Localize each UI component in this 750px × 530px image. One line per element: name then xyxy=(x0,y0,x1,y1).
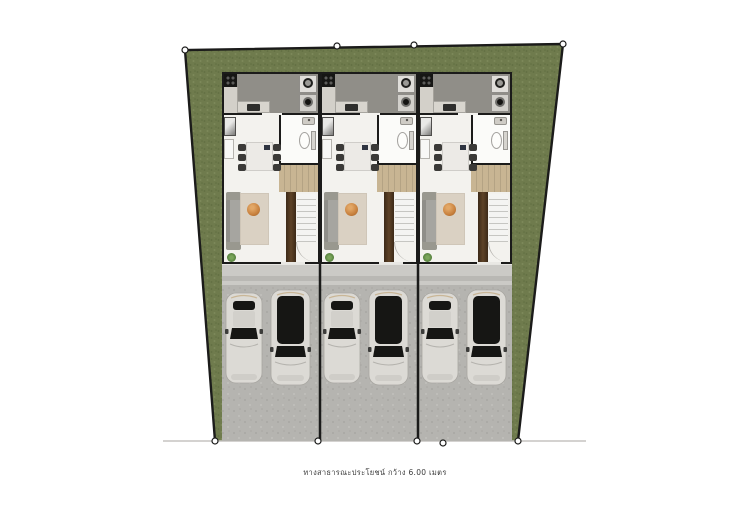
toilet-icon xyxy=(491,129,508,153)
washing-machine-icon xyxy=(397,75,415,93)
dryer-icon xyxy=(299,94,317,112)
toilet-tank xyxy=(409,131,414,150)
kitchen-counter xyxy=(420,87,434,113)
dryer-drum-icon xyxy=(495,97,505,107)
survey-marker xyxy=(334,43,340,49)
kitchen-sink-icon xyxy=(443,104,456,111)
staircase-treads xyxy=(297,194,316,242)
living-area xyxy=(322,115,416,262)
table-decor xyxy=(362,145,368,150)
stair-landing xyxy=(279,165,318,192)
rug xyxy=(436,193,465,245)
kitchen-sink-icon xyxy=(345,104,358,111)
rug xyxy=(338,193,367,245)
fridge-icon xyxy=(224,117,236,136)
stair-landing xyxy=(377,165,416,192)
kitchen-sink-counter xyxy=(237,101,270,113)
plant-icon xyxy=(423,253,432,262)
toilet-bowl xyxy=(397,132,408,149)
stove-icon xyxy=(224,74,237,87)
cabinet xyxy=(322,139,332,159)
dining-chair xyxy=(336,154,344,161)
plant-icon xyxy=(227,253,236,262)
dining-chair xyxy=(238,164,246,171)
site-plan: ทางสาธารณะประโยชน์ กว้าง 6.00 เมตร xyxy=(0,0,750,530)
kitchen-sink-icon xyxy=(247,104,260,111)
kitchen-counter xyxy=(322,87,336,113)
dining-chair xyxy=(434,164,442,171)
bathroom-sink-icon xyxy=(400,117,413,125)
dining-chair xyxy=(371,164,379,171)
dining-chair xyxy=(469,164,477,171)
survey-marker xyxy=(560,41,566,47)
front-door-opening xyxy=(477,262,501,264)
staircase-treads xyxy=(395,194,414,242)
dryer-icon xyxy=(397,94,415,112)
kitchen-sink-counter xyxy=(335,101,368,113)
survey-marker xyxy=(411,42,417,48)
car-suv xyxy=(270,288,311,387)
bathroom xyxy=(377,115,416,165)
dining-table xyxy=(246,142,273,171)
washing-machine-icon xyxy=(491,75,509,93)
kitchen-sink-counter xyxy=(433,101,466,113)
living-area xyxy=(420,115,510,262)
dining-chair xyxy=(273,154,281,161)
car-suv xyxy=(466,288,507,387)
door-swing-arc xyxy=(488,242,508,262)
fridge-icon xyxy=(420,117,432,136)
dining-chair xyxy=(273,144,281,151)
sofa xyxy=(324,192,339,250)
kitchen-area xyxy=(420,74,510,115)
dining-chair xyxy=(469,154,477,161)
bathroom xyxy=(279,115,318,165)
rug xyxy=(240,193,269,245)
cabinet xyxy=(224,139,234,159)
door-swing-arc xyxy=(394,242,414,262)
dining-table xyxy=(344,142,371,171)
dining-chair xyxy=(434,154,442,161)
washer-drum-icon xyxy=(495,78,505,88)
front-door-opening xyxy=(379,262,403,264)
survey-marker xyxy=(515,438,521,444)
plant-icon xyxy=(325,253,334,262)
dining-chair xyxy=(469,144,477,151)
dining-chair xyxy=(336,144,344,151)
washing-machine-icon xyxy=(299,75,317,93)
townhouse-block xyxy=(222,72,512,441)
dining-chair xyxy=(434,144,442,151)
dining-chair xyxy=(238,154,246,161)
living-area xyxy=(224,115,318,262)
kitchen-area xyxy=(322,74,416,115)
bathroom-sink-icon xyxy=(494,117,507,125)
unit-building xyxy=(222,72,320,264)
dining-chair xyxy=(371,154,379,161)
road-caption: ทางสาธารณะประโยชน์ กว้าง 6.00 เมตร xyxy=(0,467,750,479)
car-sedan xyxy=(323,291,361,385)
staircase-wall xyxy=(286,192,296,262)
sofa xyxy=(422,192,437,250)
toilet-tank xyxy=(311,131,316,150)
staircase-wall xyxy=(384,192,394,262)
dining-chair xyxy=(238,144,246,151)
car-sedan xyxy=(225,291,263,385)
ottoman xyxy=(443,203,456,216)
unit-building xyxy=(418,72,512,264)
kitchen-counter xyxy=(224,87,238,113)
toilet-bowl xyxy=(491,132,502,149)
ottoman xyxy=(247,203,260,216)
toilet-tank xyxy=(503,131,508,150)
dining-table xyxy=(442,142,469,171)
table-decor xyxy=(264,145,270,150)
car-suv xyxy=(368,288,409,387)
fridge-icon xyxy=(322,117,334,136)
stove-icon xyxy=(322,74,335,87)
townhouse-unit xyxy=(320,72,418,441)
cabinet xyxy=(420,139,430,159)
dryer-icon xyxy=(491,94,509,112)
survey-marker xyxy=(182,47,188,53)
townhouse-unit xyxy=(222,72,320,441)
dining-chair xyxy=(336,164,344,171)
ottoman xyxy=(345,203,358,216)
door-swing-arc xyxy=(296,242,316,262)
car-sedan xyxy=(421,291,459,385)
staircase-wall xyxy=(478,192,488,262)
dryer-drum-icon xyxy=(401,97,411,107)
toilet-icon xyxy=(397,129,414,153)
townhouse-unit xyxy=(418,72,512,441)
dryer-drum-icon xyxy=(303,97,313,107)
toilet-bowl xyxy=(299,132,310,149)
toilet-icon xyxy=(299,129,316,153)
washer-drum-icon xyxy=(303,78,313,88)
survey-marker xyxy=(212,438,218,444)
stove-icon xyxy=(420,74,433,87)
bathroom-sink-icon xyxy=(302,117,315,125)
table-decor xyxy=(460,145,466,150)
unit-building xyxy=(320,72,418,264)
washer-drum-icon xyxy=(401,78,411,88)
front-door-opening xyxy=(281,262,305,264)
staircase-treads xyxy=(489,194,508,242)
dining-chair xyxy=(371,144,379,151)
sofa xyxy=(226,192,241,250)
dining-chair xyxy=(273,164,281,171)
kitchen-area xyxy=(224,74,318,115)
